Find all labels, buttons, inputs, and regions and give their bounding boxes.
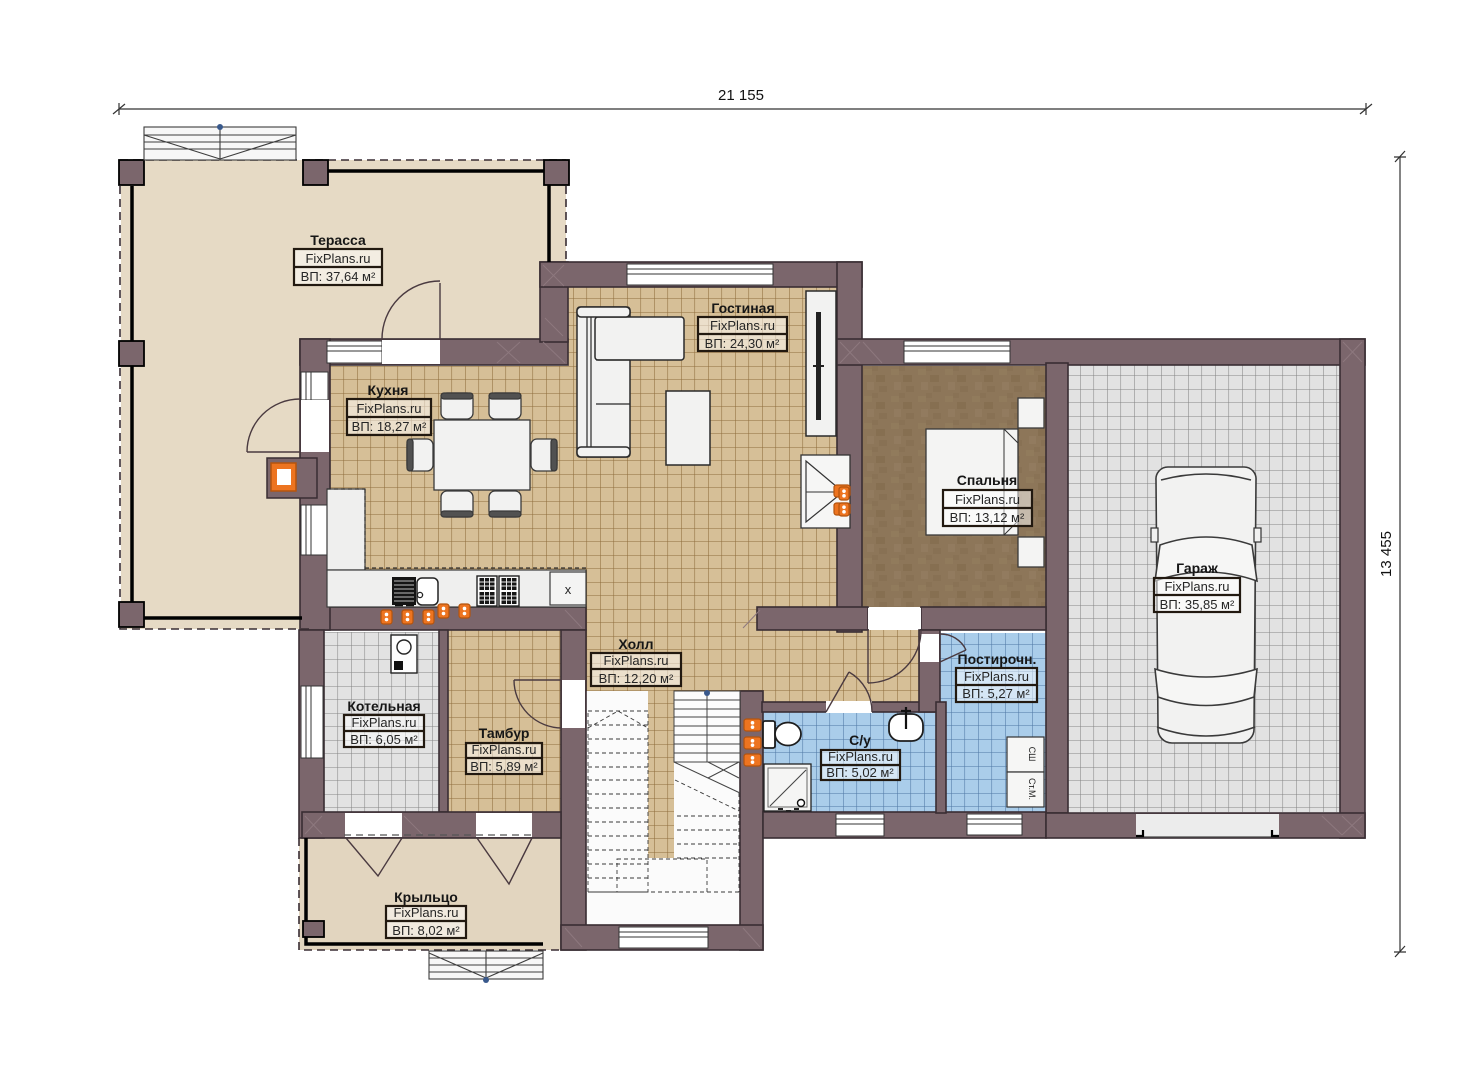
svg-text:ВП: 13,12 м²: ВП: 13,12 м² [950, 510, 1025, 525]
svg-text:FixPlans.ru: FixPlans.ru [1164, 579, 1229, 594]
svg-text:СШ: СШ [1027, 747, 1037, 762]
svg-text:FixPlans.ru: FixPlans.ru [710, 318, 775, 333]
svg-text:Гостиная: Гостиная [711, 300, 774, 316]
svg-text:Спальня: Спальня [957, 472, 1017, 488]
svg-text:ВП: 8,02 м²: ВП: 8,02 м² [392, 923, 460, 938]
svg-text:FixPlans.ru: FixPlans.ru [305, 251, 370, 266]
svg-text:Крыльцо: Крыльцо [394, 889, 458, 905]
svg-text:21 155: 21 155 [718, 87, 764, 104]
svg-text:13 455: 13 455 [1378, 531, 1395, 577]
svg-text:С/у: С/у [849, 732, 871, 748]
svg-text:FixPlans.ru: FixPlans.ru [351, 715, 416, 730]
svg-text:ВП: 24,30 м²: ВП: 24,30 м² [705, 336, 780, 351]
svg-text:ВП: 5,02 м²: ВП: 5,02 м² [826, 765, 894, 780]
svg-text:ВП: 5,89 м²: ВП: 5,89 м² [470, 759, 538, 774]
svg-text:ВП: 6,05 м²: ВП: 6,05 м² [350, 732, 418, 747]
svg-text:FixPlans.ru: FixPlans.ru [964, 669, 1029, 684]
svg-text:FixPlans.ru: FixPlans.ru [393, 905, 458, 920]
svg-text:FixPlans.ru: FixPlans.ru [471, 742, 536, 757]
svg-text:FixPlans.ru: FixPlans.ru [356, 401, 421, 416]
svg-text:x: x [565, 582, 572, 597]
svg-text:Кухня: Кухня [368, 382, 409, 398]
svg-text:ВП: 37,64 м²: ВП: 37,64 м² [301, 269, 376, 284]
svg-text:FixPlans.ru: FixPlans.ru [603, 653, 668, 668]
svg-text:ВП: 18,27 м²: ВП: 18,27 м² [352, 419, 427, 434]
svg-text:Постирочн.: Постирочн. [958, 651, 1037, 667]
svg-text:Терасса: Терасса [310, 232, 366, 248]
svg-text:ВП: 35,85 м²: ВП: 35,85 м² [1160, 597, 1235, 612]
svg-text:Ст.М.: Ст.М. [1027, 778, 1037, 800]
svg-text:Котельная: Котельная [347, 698, 420, 714]
svg-text:Тамбур: Тамбур [479, 725, 530, 741]
svg-text:Холл: Холл [618, 636, 653, 652]
svg-text:ВП: 5,27 м²: ВП: 5,27 м² [962, 686, 1030, 701]
svg-text:ВП: 12,20 м²: ВП: 12,20 м² [599, 671, 674, 686]
svg-text:Гараж: Гараж [1176, 560, 1219, 576]
svg-text:FixPlans.ru: FixPlans.ru [828, 749, 893, 764]
svg-text:FixPlans.ru: FixPlans.ru [955, 492, 1020, 507]
